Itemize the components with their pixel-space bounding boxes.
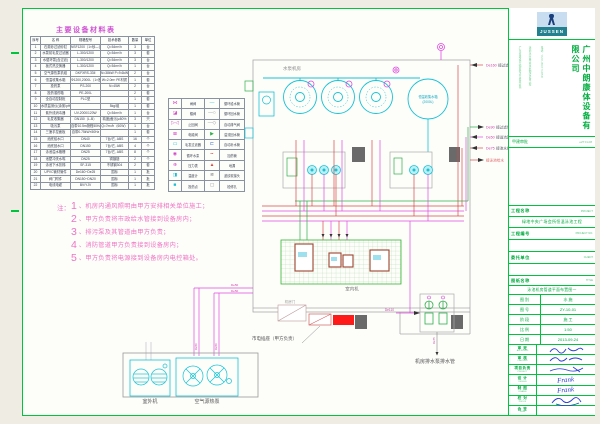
cell-model: DN150 [71,143,101,150]
legend-symbol: —○ [208,111,216,116]
projno-label: 工程编号 [511,231,530,237]
cell-qty: 3 [129,51,142,58]
cell-spec: 国标 [101,169,129,176]
drawing-title-label-en: TITLE [586,279,593,282]
signature [537,345,595,354]
legend-label: 温度计 [182,171,205,181]
project-label-en: PROJECT [581,210,593,213]
meta-value: 施 工 [541,315,595,324]
cell-name: 石英砂过滤砂缸 [41,44,71,51]
legend-symbol: ▢ [210,183,215,188]
cell-unit: 个 [142,150,155,157]
note-text: 、甲方负责将电源接到设备房内电控箱处。 [79,253,202,262]
note-line: 4 、消防管道甲方负责接到设备房内； [57,238,252,251]
company-cert: 泳池水疗桑拿水处理设备工程 [527,46,531,86]
note-number: 1 [71,200,77,212]
legend-label: 溢流回水管 [220,129,245,139]
table-row: 12 毛发收集器 DN150（L-B） 精度(截污)≥80% 3 只 [31,117,155,124]
cell-name: 三速手控面板 [41,130,71,137]
note-text: 、机房内通风照明由甲方安排相关单位施工； [79,201,209,210]
sig-label-en: PROJECT [518,371,528,373]
cell-qty: 4 [129,143,142,150]
cell-qty: 1 [129,123,142,130]
cell-no: 18 [31,156,41,163]
legend-row: ⊕ 压力表 ▲ 地漏 [169,160,245,170]
cell-name: 池底回水口 [41,143,71,150]
legend-symbol: ▭ [173,142,178,147]
cell-unit: 台 [142,110,155,117]
legend-label: 加药管 [220,150,245,160]
cell-model [71,103,101,110]
legend-label: 止回阀 [182,119,205,129]
cell-spec: N=38kW P=9.6kW [101,70,129,77]
legend-symbol: ╍ [211,152,214,157]
cell-qty: 1 [129,110,142,117]
cell-spec: 7台/它, ABS [101,150,129,157]
table-row: 13 吸污泵 自带10.5m扬程50Hz Q=7m³/h（60W） 1 台 [31,123,155,130]
cell-unit: 台 [142,64,155,71]
sig-label-en: CHECKED [517,360,527,362]
cell-name: 电线电缆 [41,182,71,189]
title-block: JUSSEN 广州中朗康体设备有限公司 广东省建设厅颁发专业资质证书 泳池水疗桑… [508,8,595,415]
cell-unit: 批 [142,169,155,176]
legend-label: 投药点 [182,181,205,191]
cell-name: 水循环泵(含过滤) [41,57,71,64]
cell-spec: 铜镀铬 [101,156,129,163]
meta-key: 日 期 [509,335,541,344]
cell-qty: 1 [129,103,142,110]
cell-no: 17 [31,150,41,157]
cell-unit: 台 [142,84,155,91]
cell-qty: 1 [129,176,142,183]
meta-key: 图 别 [509,295,541,304]
cell-name: 紫外线消毒器 [41,110,71,117]
table-row: 9 全自动控制柜 PLC型 1 套 [31,97,155,104]
cell-name: 全自动控制柜 [41,97,71,104]
legend-body: ⋈ 闸阀 — 循环给水管 ◪ 蝶阀 —○ 循环回水管 ▷◁ 止回阀 —◇ 自动排… [169,99,245,192]
note-number: 5 [71,252,77,264]
cell-model: NSF1200（1×砂—含介质） [71,44,101,51]
sig-row-design: 设 计DESIGN Frank [509,375,595,385]
signature [537,365,595,374]
legend-label: 波纹软接头 [220,171,245,181]
meta-rows: 图 别 水 施 图 号 ZY-10-01 阶 段 施 工 比 例 1:50 日 … [509,295,595,345]
cell-model: BV/YJV [71,182,101,189]
cell-no: 21 [31,176,41,183]
cell-qty: 1 [129,130,142,137]
header-cell: 数量 [129,37,142,45]
meta-row: 阶 段 施 工 [509,315,595,325]
cell-name: 投药溶药箱 [41,90,71,97]
table-row: 8 投药溶药箱 PE-200L 2 套 [31,90,155,97]
company-cert: 广东省建设厅颁发专业资质证书 [517,46,521,89]
legend-row: ■ 投药点 ▢ 检修孔 [169,181,245,191]
table-row: 15 池底给水口 DN40 7台/它, ABS 16 个 [31,136,155,143]
table-row: 17 泳池溢水格栅 DN25 7台/它, ABS 8 个 [31,150,155,157]
meta-value: ZY-10-01 [541,305,595,314]
cell-qty: 2 [129,70,142,77]
table-row: 7 投药泵 PS-200 N=45W 2 台 [31,84,155,91]
company-cell: 广州中朗康体设备有限公司 广东省建设厅颁发专业资质证书 泳池水疗桑拿水处理设备工… [509,40,595,137]
cell-qty: 8 [129,150,142,157]
cell-name: 水质监测仪(余氯/pH值) [41,103,71,110]
cell-no: 15 [31,136,41,143]
cell-model: PS-200 [71,84,101,91]
cell-unit: 套 [142,51,155,58]
legend-label: 循环给水管 [220,99,245,109]
cell-no: 20 [31,169,41,176]
table-row: 16 池底回水口 DN150 7台/它, ABS 4 个 [31,143,155,150]
meta-key: 比 例 [509,325,541,334]
cell-qty: 3 [129,44,142,51]
legend-symbol: —◇ [208,121,217,126]
cell-model: UV-2000/120W [71,110,101,117]
cell-unit: 套 [142,77,155,84]
legend-row: ⊠ 电磁阀 ▶ 溢流回水管 [169,129,245,139]
cell-no: 5 [31,70,41,77]
legend-row: ◉ 循环水泵 ╍ 加药管 [169,150,245,160]
cell-no: 8 [31,90,41,97]
cell-qty: 2 [129,163,142,170]
cell-spec [101,90,129,97]
notes-list: 1 、机房内通风照明由甲方安排相关单位施工； 2 、甲方负责将市政给水管接到设备… [57,199,252,264]
client-label-en: CLIENT [584,256,593,259]
cell-model: Φ1200,2000L（1×胶—含阀） [71,77,101,84]
note-text: 、消防管道甲方负责接到设备房内； [79,240,183,249]
equipment-table-title: 主要设备材料表 [56,25,116,35]
legend-symbol: ▷◁ [171,121,178,126]
projno-label-row: 工程编号 PROJECT NO. [509,228,595,240]
cell-model: DKFXRS-33II [71,70,101,77]
cell-unit: 套 [142,103,155,110]
legend-label: 自动补水管 [220,140,245,150]
note-text: 、甲方负责将市政给水管接到设备房内； [79,214,196,223]
legend-row: ▭ 毛发过滤器 ⊏ 自动补水管 [169,140,245,150]
sig-label-en: DRAWN [519,391,527,393]
legend-symbol: ▲ [210,163,215,168]
cell-model: 自带10.5m扬程50Hz [71,123,101,130]
cell-qty: 3 [129,117,142,124]
signature-empty [537,406,595,415]
projno-label-en: PROJECT NO. [576,232,593,235]
legend-label: 检修孔 [220,181,245,191]
note-line: 2 、甲方负责将市政给水管接到设备房内； [57,212,252,225]
drawing-title: 泳池机房管道平面布置图一 [509,286,595,295]
cell-model: PE-200L [71,90,101,97]
cell-no: 14 [31,130,41,137]
legend-label: 电磁阀 [182,129,205,139]
cell-spec: 5kg/组 [101,103,129,110]
cell-spec: Q=54m³/h [101,110,129,117]
cell-spec: Q=54m³/h [101,57,129,64]
cell-unit: 批 [142,176,155,183]
cell-spec: Q=54m³/h [101,51,129,58]
legend-symbol: ◉ [173,152,177,157]
header-cell: 单位 [142,37,155,45]
cell-model: DN25 [71,150,101,157]
cell-name: 投药泵 [41,84,71,91]
table-row: 10 水质监测仪(余氯/pH值) 5kg/组 1 套 [31,103,155,110]
project-label: 工程名称 [511,208,530,214]
equipment-table-header: 序号名 称规格型号技术参数数量单位 [31,37,155,45]
legend-label: 压力表 [182,160,205,170]
cell-model: 自带0.75kW×50Hz [71,130,101,137]
cell-spec: Q=54m³/h [101,44,129,51]
table-row: 21 阀门附件 DN150~DN20 国标 1 批 [31,176,155,183]
note-text: 、排污泵及其管道由甲方负责； [79,227,170,236]
sig-label-en: PROOF [519,401,526,403]
cell-unit: 套 [142,97,155,104]
header-cell: 规格型号 [71,37,101,45]
cell-unit: 个 [142,143,155,150]
cell-unit: 个 [142,136,155,143]
logo-text: JUSSEN [537,27,567,36]
cell-qty: 1 [129,169,142,176]
cell-model: De160~De25 [71,169,101,176]
cell-model: DN150~DN20 [71,176,101,183]
title-label-row: 图纸名称 TITLE [509,276,595,286]
legend-symbol: ◪ [173,111,178,116]
cell-qty: 16 [129,136,142,143]
signature: Frank [557,375,575,384]
cell-qty: 2 [129,90,142,97]
sig-label-en: DESIGN [519,381,527,383]
cell-spec [101,130,129,137]
approval-label: 甲建审批 [512,139,528,145]
cell-no: 2 [31,51,41,58]
note-number: 4 [71,239,77,251]
cell-unit: 套 [142,90,155,97]
cell-unit: 台 [142,123,155,130]
legend-symbol: ≋ [210,173,214,178]
header-cell: 名 称 [41,37,71,45]
cell-unit: 个 [142,156,155,163]
cell-name: 池底给水口 [41,136,71,143]
table-row: 1 石英砂过滤砂缸 NSF1200（1×砂—含介质） Q=54m³/h 3 台 [31,44,155,51]
note-number: 2 [71,213,77,225]
drawing-title-label: 图纸名称 [511,278,530,284]
legend-label: 循环水泵 [182,150,205,160]
note-line: 5 、甲方负责将电源接到设备房内电控箱处。 [57,251,252,264]
legend-symbol: ⊠ [173,132,177,137]
cell-qty: 3 [129,57,142,64]
table-row: 20 UPVC管材管件 De160~De25 国标 1 批 [31,169,155,176]
cell-spec: 不锈钢304 [101,163,129,170]
note-line: 1 、机房内通风照明由甲方安排相关单位施工； [57,199,252,212]
company-name: 广州中朗康体设备有限公司 [570,45,592,136]
cell-name: 泳池下水扶梯 [41,163,71,170]
logo-figure [537,12,567,27]
cell-no: 6 [31,77,41,84]
legend-label: 蝶阀 [182,109,205,119]
cell-unit: 批 [142,182,155,189]
cell-qty: 2 [129,156,142,163]
sig-row-pm: 项目负责PROJECT [509,365,595,375]
cell-model: SF-315 [71,163,101,170]
cell-name: 吸污泵 [41,123,71,130]
cell-name: 空气源热泵机组 [41,70,71,77]
table-row: 14 三速手控面板 自带0.75kW×50Hz 1 套 [31,130,155,137]
cell-unit: 台 [142,70,155,77]
cell-spec: 7台/它, ABS [101,136,129,143]
legend-symbol: ■ [174,183,177,188]
cell-no: 7 [31,84,41,91]
legend-label: 闸阀 [182,99,205,109]
meta-row: 日 期 2013-09-24 [509,335,595,345]
frame-tick [11,210,19,212]
cell-name: 泳池溢水格栅 [41,150,71,157]
legend-label: 循环回水管 [220,109,245,119]
legend-symbol: ▶ [210,132,214,137]
approval-value: eZT.FL08 [579,140,592,144]
company-logo: JUSSEN [537,12,567,36]
cell-model: DN25 [71,156,101,163]
cell-name: 池壁冲洗水嘴 [41,156,71,163]
signature: Frank [557,385,575,394]
cell-model: L-300/1200 [71,51,101,58]
cell-spec: 精度(截污)≥80% [101,117,129,124]
cell-model: L-300/1200 [71,64,101,71]
meta-key: 图 号 [509,305,541,314]
cell-no: 9 [31,97,41,104]
table-row: 19 泳池下水扶梯 SF-315 不锈钢304 2 套 [31,163,155,170]
legend-symbol: — [210,101,215,106]
approval-row: 甲建审批 eZT.FL08 [509,137,595,148]
cell-spec: 7台/它, ABS [101,143,129,150]
legend-symbol: ⋈ [173,101,178,106]
drawing-sheet: 主要设备材料表 序号名 称规格型号技术参数数量单位 1 石英砂过滤砂缸 NSF1… [0,0,600,424]
cell-name: 阀门附件 [41,176,71,183]
cell-spec: W=2.0m³ PE材质 [101,77,129,84]
cell-qty: 1 [129,64,142,71]
blank-cell [509,148,595,206]
cell-no: 11 [31,110,41,117]
meta-value: 水 施 [541,295,595,304]
cell-spec: 国标 [101,176,129,183]
legend-symbol: ⊏ [210,142,214,147]
cell-unit: 只 [142,117,155,124]
table-row: 22 电线电缆 BV/YJV 国标 1 批 [31,182,155,189]
note-line: 3 、排污泵及其管道由甲方负责； [57,225,252,238]
cell-no: 13 [31,123,41,130]
cell-no: 19 [31,163,41,170]
cell-no: 22 [31,182,41,189]
header-cell: 技术参数 [101,37,129,45]
sig-row-countersign: 会 签SIGN [509,406,595,415]
table-row: 18 池壁冲洗水嘴 DN25 铜镀铬 2 个 [31,156,155,163]
cell-name: 水泵前毛发过滤器 [41,51,71,58]
cell-name: 毛发收集器 [41,117,71,124]
cell-spec: Q=7m³/h（60W） [101,123,129,130]
cell-name: 恒温收集水箱 [41,77,71,84]
frame-tick [11,52,19,54]
equipment-table-body: 1 石英砂过滤砂缸 NSF1200（1×砂—含介质） Q=54m³/h 3 台 … [31,44,155,189]
cell-no: 10 [31,103,41,110]
legend-symbol: ◨ [173,173,178,178]
client-label: 委托单位 [511,255,530,261]
sig-label-en: APPROVED [517,350,529,352]
legend-label: 自动排气阀 [220,119,245,129]
cell-no: 12 [31,117,41,124]
note-number: 3 [71,226,77,238]
table-row: 5 空气源热泵机组 DKFXRS-33II N=38kW P=9.6kW 2 台 [31,70,155,77]
meta-value: 1:50 [541,325,595,334]
blank-cell [509,264,595,276]
cell-qty: 1 [129,97,142,104]
meta-row: 比 例 1:50 [509,325,595,335]
cell-spec: 国标 [101,182,129,189]
table-row: 11 紫外线消毒器 UV-2000/120W Q=54m³/h 1 台 [31,110,155,117]
blank-cell [509,240,595,252]
signature [537,396,595,405]
header-cell: 序号 [31,37,41,45]
table-row: 3 水循环泵(含过滤) L-300/1200 Q=54m³/h 3 台 [31,57,155,64]
legend-row: ⋈ 闸阀 — 循环给水管 [169,99,245,109]
project-value: 绿地中央广场会所恒温泳池工程 [509,217,595,228]
cell-model: DN40 [71,136,101,143]
meta-key: 阶 段 [509,315,541,324]
table-row: 6 恒温收集水箱 Φ1200,2000L（1×胶—含阀） W=2.0m³ PE材… [31,77,155,84]
cell-qty: 1 [129,182,142,189]
cell-spec: N=45W [101,84,129,91]
cell-no: 4 [31,64,41,71]
cell-unit: 套 [142,130,155,137]
meta-row: 图 号 ZY-10-01 [509,305,595,315]
sig-row-proof: 校 对PROOF [509,396,595,406]
cell-name: 板式热交换器 [41,64,71,71]
cell-qty: 2 [129,84,142,91]
meta-value: 2013-09-24 [541,335,595,344]
construction-notes: 注： 1 、机房内通风照明由甲方安排相关单位施工； 2 、甲方负责将市政给水管接… [57,199,252,264]
cell-unit: 台 [142,57,155,64]
table-row: 4 板式热交换器 L-300/1200 Q=54m³/h 1 台 [31,64,155,71]
client-label-row: 委托单位 CLIENT [509,252,595,264]
cell-model: PLC型 [71,97,101,104]
cell-no: 3 [31,57,41,64]
cell-model: L-300/1200 [71,57,101,64]
legend-row: ◨ 温度计 ≋ 波纹软接头 [169,171,245,181]
legend-symbol: ⊕ [173,163,177,168]
legend-row: ▷◁ 止回阀 —◇ 自动排气阀 [169,119,245,129]
equipment-table: 序号名 称规格型号技术参数数量单位 1 石英砂过滤砂缸 NSF1200（1×砂—… [30,36,155,190]
cell-unit: 台 [142,44,155,51]
cell-no: 16 [31,143,41,150]
cell-spec [101,97,129,104]
cell-name: UPVC管材管件 [41,169,71,176]
project-label-row: 工程名称 PROJECT [509,206,595,217]
legend-row: ◪ 蝶阀 —○ 循环回水管 [169,109,245,119]
cell-model: DN150（L-B） [71,117,101,124]
meta-row: 图 别 水 施 [509,295,595,305]
company-cert: 电话：020-86071858 [539,46,543,78]
cell-unit: 套 [142,163,155,170]
sig-label-en: SIGN [520,411,525,413]
cell-spec: Q=54m³/h [101,64,129,71]
logo-cell: JUSSEN [509,8,595,40]
legend-table: ⋈ 闸阀 — 循环给水管 ◪ 蝶阀 —○ 循环回水管 ▷◁ 止回阀 —◇ 自动排… [168,98,245,192]
legend-label: 地漏 [220,160,245,170]
cell-no: 1 [31,44,41,51]
signature [537,355,595,364]
legend-label: 毛发过滤器 [182,140,205,150]
cell-qty: 1 [129,77,142,84]
table-row: 2 水泵前毛发过滤器 L-300/1200 Q=54m³/h 3 套 [31,51,155,58]
